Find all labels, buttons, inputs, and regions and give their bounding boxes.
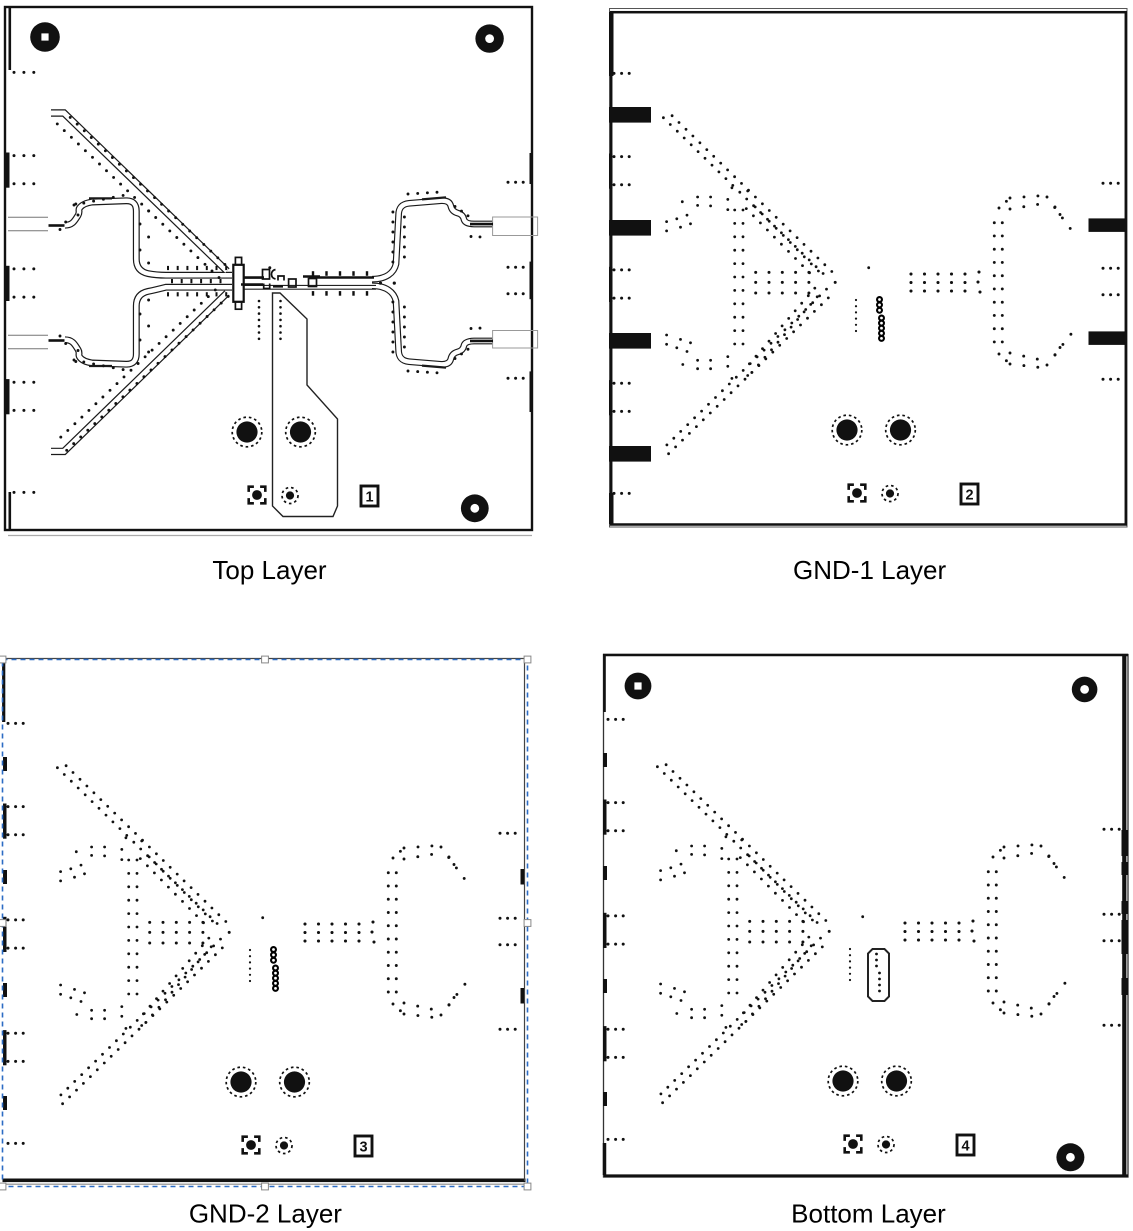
svg-text:2: 2 xyxy=(965,488,973,504)
svg-text:GND-1 Layer: GND-1 Layer xyxy=(793,555,946,585)
svg-text:4: 4 xyxy=(961,1139,969,1155)
svg-text:Top Layer: Top Layer xyxy=(212,555,327,585)
svg-text:1: 1 xyxy=(365,490,373,506)
svg-text:3: 3 xyxy=(359,1140,367,1156)
svg-text:Bottom Layer: Bottom Layer xyxy=(791,1199,946,1229)
svg-text:GND-2 Layer: GND-2 Layer xyxy=(189,1199,342,1229)
